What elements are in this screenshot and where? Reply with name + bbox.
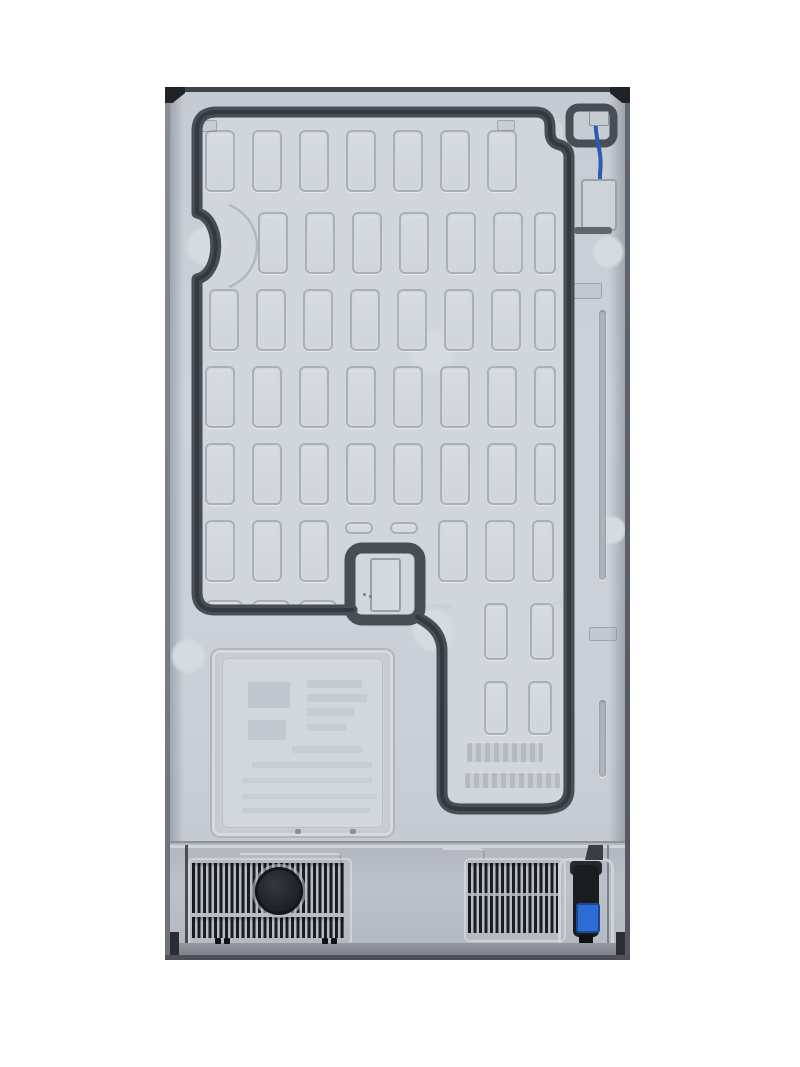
vent-seam bbox=[468, 893, 558, 896]
right-edge bbox=[625, 87, 630, 960]
vent-dash bbox=[322, 938, 328, 944]
rating-label bbox=[222, 658, 383, 828]
label-text-block bbox=[307, 708, 355, 716]
junction-box-screw bbox=[369, 595, 372, 598]
label-text-block bbox=[292, 746, 362, 753]
label-text-block bbox=[242, 778, 372, 783]
top-edge bbox=[169, 87, 626, 92]
label-text-block bbox=[307, 724, 347, 731]
valve-bracket bbox=[574, 227, 612, 234]
vent-dash bbox=[331, 938, 337, 944]
label-text-block bbox=[242, 808, 370, 813]
bottom-edge bbox=[165, 955, 630, 960]
junction-box-cover bbox=[370, 558, 401, 612]
kick-strip bbox=[170, 943, 625, 955]
left-edge bbox=[165, 87, 170, 960]
power-plug-connector bbox=[576, 903, 600, 933]
label-text-block bbox=[248, 682, 290, 708]
vent-dash bbox=[224, 938, 230, 944]
access-panel-clip bbox=[350, 829, 356, 834]
water-valve-box bbox=[581, 179, 617, 231]
channel-core-left bbox=[197, 112, 352, 610]
refrigerator-back-panel bbox=[165, 87, 630, 960]
label-text-block bbox=[307, 694, 367, 702]
vent-slats bbox=[192, 917, 344, 938]
vent-slats bbox=[468, 863, 558, 933]
label-text-block bbox=[252, 762, 372, 768]
arc-ridge bbox=[229, 205, 257, 287]
product-image-canvas: Rear view of a refrigerator — embossed m… bbox=[0, 0, 800, 1067]
label-text-block bbox=[242, 794, 377, 799]
channel-left bbox=[197, 112, 352, 610]
access-panel-clip bbox=[295, 829, 301, 834]
water-valve-fitting bbox=[589, 111, 609, 126]
junction-box-screw bbox=[363, 593, 366, 596]
label-text-block bbox=[248, 720, 286, 740]
vent-knockout-cap bbox=[255, 867, 303, 915]
compartment-highlight bbox=[170, 845, 625, 848]
vent-dash bbox=[215, 938, 221, 944]
label-text-block bbox=[307, 680, 362, 688]
